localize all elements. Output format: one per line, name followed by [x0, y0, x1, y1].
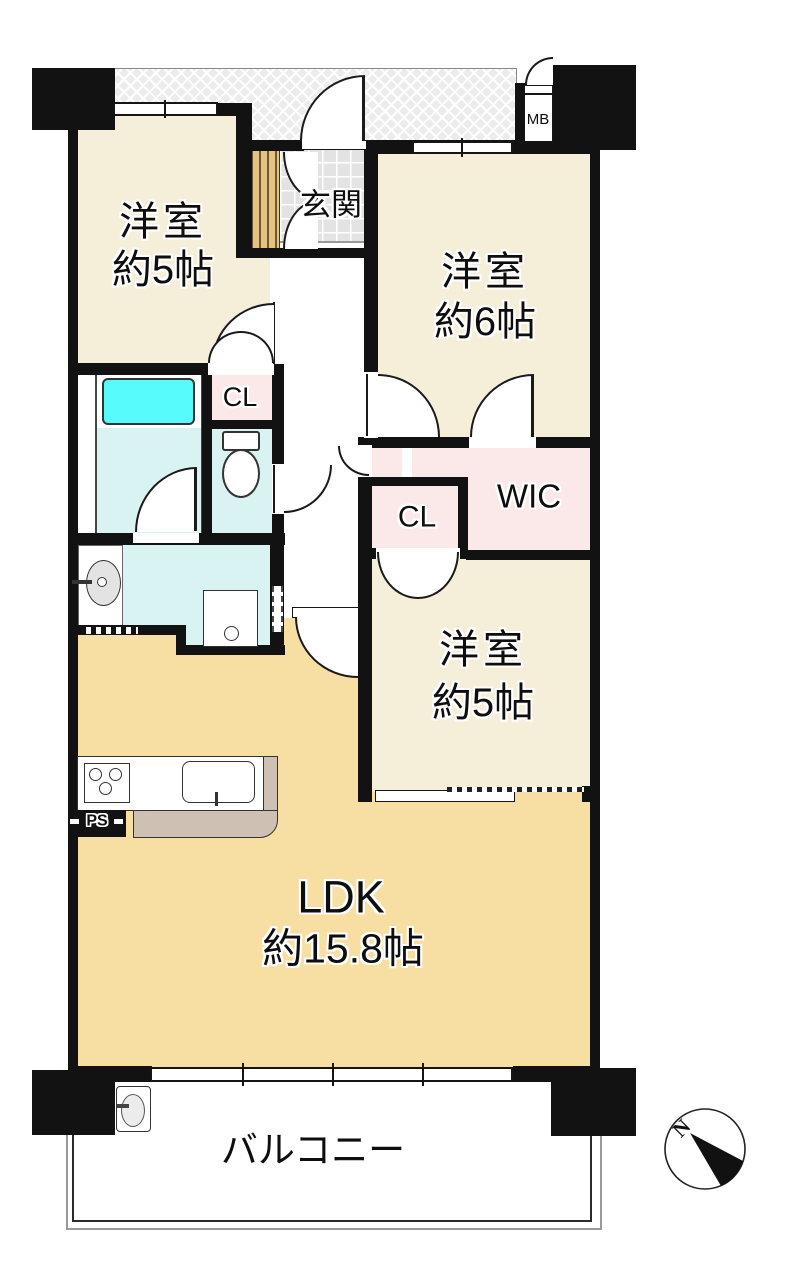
meter-box-door-arc	[525, 57, 553, 85]
vanity-wall-dashes	[86, 627, 138, 634]
balcony-slop-sink-basin	[121, 1094, 145, 1127]
hallway-floor	[270, 250, 372, 618]
room-tr-label-line2: 約6帖	[434, 301, 536, 343]
wall-strip-closet	[372, 477, 466, 486]
room-tr-label-line1: 洋室	[441, 251, 529, 293]
bathtub	[102, 378, 195, 425]
pillar-bottom-left	[32, 1070, 115, 1135]
wall-right	[590, 145, 600, 1082]
meter-box-label: MB	[527, 112, 550, 128]
pipe-space-label: PS	[86, 814, 107, 831]
wall-room-tl-bottom	[68, 363, 212, 375]
bathroom-door-sill	[133, 533, 199, 543]
meter-box-divider	[524, 93, 553, 95]
room-mid-label-line1: 洋室	[439, 629, 527, 671]
wall-hall-right	[358, 437, 372, 802]
window-ldk-tick3	[422, 1063, 424, 1086]
pillar-top-right	[551, 65, 636, 150]
closet-mid-label: CL	[398, 501, 436, 533]
entry-door-leaf	[362, 77, 365, 141]
kitchen-faucet	[215, 792, 218, 806]
washing-machine-drain	[224, 626, 239, 641]
closet-bath-label: CL	[223, 383, 258, 411]
toilet-bowl	[222, 449, 260, 498]
vanity-faucet-knob	[97, 577, 107, 587]
room6-door-leaf	[366, 374, 368, 436]
ldk-label-line1: LDK	[297, 873, 385, 920]
wall-closet-wic	[458, 477, 468, 552]
wall-room-tl-right	[236, 103, 252, 258]
window-ldk-tick2	[332, 1063, 334, 1086]
stove-burner-2	[109, 768, 122, 781]
wall-wic-bottom	[466, 550, 590, 560]
window-ldk-tick1	[242, 1063, 244, 1086]
window-room-mid-dashes	[447, 787, 584, 792]
pipe-space-tick-left	[70, 819, 79, 824]
shoe-cabinet	[250, 148, 280, 249]
kitchen-counter-edge-right	[262, 756, 278, 813]
closet-bath-opening	[208, 363, 274, 375]
wic-room6-sill	[469, 437, 536, 448]
kitchen-counter-edge-bottom	[133, 810, 278, 838]
wic-label: WIC	[497, 480, 561, 515]
pipe-space-tick-right	[114, 819, 123, 824]
stove-burner-3	[99, 782, 112, 795]
pillar-top-left	[32, 68, 115, 130]
ldk-label-line2: 約15.8帖	[262, 927, 424, 970]
wic-strip-gap	[402, 448, 412, 477]
washroom-sliding-door	[272, 586, 283, 632]
wall-entrance-bottom	[247, 248, 370, 258]
window-room-tl-tick	[164, 100, 166, 118]
bathroom-door-leaf	[194, 468, 197, 531]
wall-hall-left	[272, 363, 284, 545]
wall-closet-toilet	[208, 420, 274, 429]
wall-bath-right	[202, 372, 212, 543]
kitchen-sink	[182, 761, 255, 803]
stove-burner-1	[89, 768, 102, 781]
room-tl-label-line2: 約5帖	[112, 249, 214, 291]
wic-room6-door-leaf	[531, 375, 534, 437]
room-tl-label-line1: 洋室	[119, 201, 207, 243]
wall-entrance-top	[240, 140, 304, 151]
entrance-label: 玄関	[300, 190, 362, 223]
wall-balcony-stub	[114, 1069, 152, 1082]
room-mid-label-line2: 約5帖	[432, 682, 534, 724]
balcony-slop-sink-faucet	[117, 1104, 129, 1108]
balcony-label: バルコニー	[221, 1132, 405, 1171]
toilet-tank	[222, 431, 260, 451]
pillar-bottom-right	[551, 1068, 636, 1136]
window-room-tr-tick	[461, 138, 463, 157]
floor-plan: 洋室 約5帖 玄関 洋室 約6帖 CL CL WIC MB 洋室 約5帖 LDK…	[0, 0, 800, 1283]
vanity-faucet	[72, 580, 92, 584]
toilet-door-leaf	[273, 465, 275, 513]
wall-left	[68, 103, 78, 1080]
entry-door-sill	[301, 140, 367, 150]
compass: N	[663, 1107, 748, 1192]
